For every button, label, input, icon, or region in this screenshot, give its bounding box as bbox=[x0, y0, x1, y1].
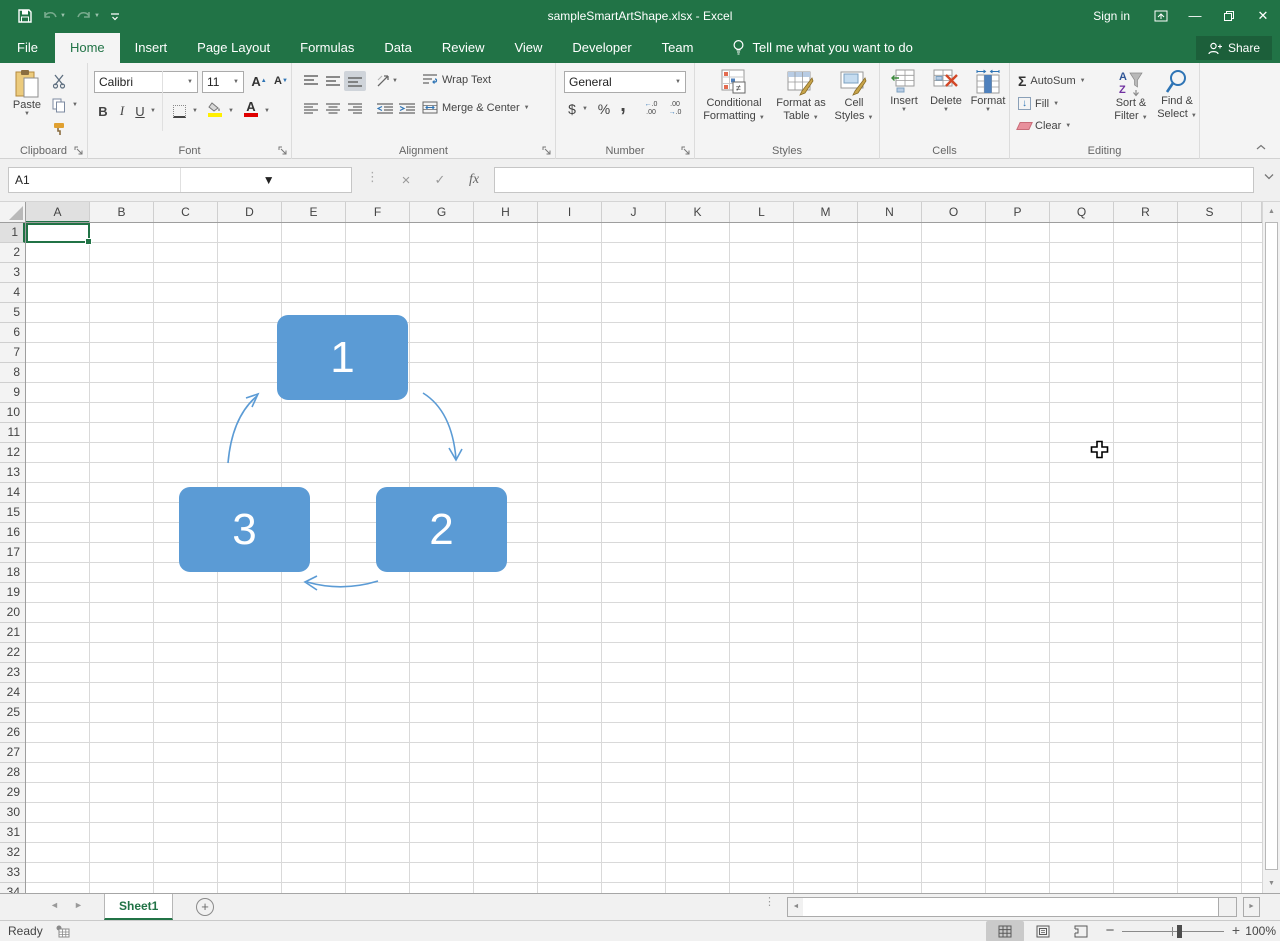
save-icon bbox=[18, 9, 32, 23]
sign-in-link[interactable]: Sign in bbox=[1079, 9, 1144, 23]
sheet-tab-sheet1[interactable]: Sheet1 bbox=[104, 894, 173, 920]
undo-button[interactable]: ▼ bbox=[42, 9, 66, 22]
row-header-29[interactable]: 29 bbox=[0, 783, 25, 803]
smartart-shape-1-label: 1 bbox=[330, 333, 354, 383]
selected-cell-a1[interactable] bbox=[26, 223, 90, 243]
font-color-button[interactable]: A bbox=[240, 99, 262, 119]
row-header-23[interactable]: 23 bbox=[0, 663, 25, 683]
row-header-26[interactable]: 26 bbox=[0, 723, 25, 743]
accounting-format-button[interactable]: $ bbox=[564, 99, 580, 119]
column-header-E[interactable]: E bbox=[282, 202, 346, 223]
ribbon-display-options-button[interactable] bbox=[1144, 0, 1178, 31]
column-header-J[interactable]: J bbox=[602, 202, 666, 223]
top-align-button[interactable] bbox=[300, 71, 322, 91]
fill-icon: ↓ bbox=[1018, 97, 1031, 110]
orientation-icon bbox=[376, 74, 392, 88]
status-bar: Ready − + 100% bbox=[0, 920, 1280, 941]
orientation-button[interactable]: ▼ bbox=[374, 71, 400, 91]
find-select-button[interactable]: Find & Select ▼ bbox=[1156, 69, 1198, 121]
view-shortcuts bbox=[986, 921, 1100, 941]
merge-center-button[interactable]: Merge & Center ▼ bbox=[422, 101, 530, 114]
autosum-icon: Σ bbox=[1018, 73, 1026, 89]
vertical-scrollbar[interactable]: ▲ ▼ bbox=[1262, 202, 1280, 893]
merge-center-label: Merge & Center bbox=[442, 102, 520, 114]
group-number: General▼ $ ▼ % , ←.0.00 .00→.0 Number bbox=[556, 63, 695, 159]
copy-dropdown-icon[interactable]: ▼ bbox=[72, 102, 78, 108]
format-cells-button[interactable]: Format ▼ bbox=[968, 69, 1008, 113]
fill-label: Fill bbox=[1035, 98, 1049, 110]
save-button[interactable] bbox=[18, 9, 32, 23]
wrap-text-icon bbox=[422, 73, 438, 86]
excel-window: ▼ ▼ sampleSmartArtShape.xlsx - Excel Sig… bbox=[0, 0, 1280, 941]
column-header-K[interactable]: K bbox=[666, 202, 730, 223]
row-header-8[interactable]: 8 bbox=[0, 363, 25, 383]
zoom-out-button[interactable]: − bbox=[1102, 922, 1118, 939]
conditional-formatting-label-2: Formatting bbox=[703, 110, 756, 122]
horizontal-scrollbar[interactable]: ◄ bbox=[787, 897, 1237, 917]
cell-styles-button[interactable]: Cell Styles ▼ bbox=[831, 69, 877, 123]
row-header-25[interactable]: 25 bbox=[0, 703, 25, 723]
select-all-corner[interactable] bbox=[0, 202, 26, 223]
svg-text:A: A bbox=[1119, 71, 1127, 83]
find-select-label-2: Select bbox=[1157, 108, 1188, 120]
bottom-align-button[interactable] bbox=[344, 71, 366, 91]
clear-dropdown-icon: ▼ bbox=[1065, 123, 1071, 129]
row-header-20[interactable]: 20 bbox=[0, 603, 25, 623]
row-header-33[interactable]: 33 bbox=[0, 863, 25, 883]
group-styles: ≠ Conditional Formatting ▼ Format as Tab… bbox=[695, 63, 880, 159]
customize-qat-icon bbox=[110, 11, 120, 21]
sheet-tab-bar: ◄ ► Sheet1 + ⋮ ◄ ► bbox=[0, 893, 1280, 920]
column-header-H[interactable]: H bbox=[474, 202, 538, 223]
column-header-N[interactable]: N bbox=[858, 202, 922, 223]
row-headers: 1234567891011121314151617181920212223242… bbox=[0, 223, 26, 893]
page-layout-view-button[interactable] bbox=[1024, 921, 1062, 941]
tab-developer[interactable]: Developer bbox=[557, 33, 646, 63]
cut-button[interactable] bbox=[48, 71, 70, 91]
merge-center-dropdown-icon: ▼ bbox=[524, 105, 530, 111]
row-header-16[interactable]: 16 bbox=[0, 523, 25, 543]
row-header-6[interactable]: 6 bbox=[0, 323, 25, 343]
group-editing: Σ AutoSum ▼ ↓ Fill ▼ Clear ▼ A Z bbox=[1010, 63, 1200, 159]
titlebar-controls: Sign in — ✕ bbox=[1079, 0, 1280, 31]
fill-color-dropdown-icon[interactable]: ▼ bbox=[228, 108, 234, 114]
find-select-icon bbox=[1165, 69, 1189, 95]
undo-dropdown-icon: ▼ bbox=[60, 13, 66, 19]
tab-data[interactable]: Data bbox=[369, 33, 426, 63]
row-header-28[interactable]: 28 bbox=[0, 763, 25, 783]
cell-styles-icon bbox=[840, 69, 868, 97]
number-dialog-launcher[interactable] bbox=[681, 146, 691, 156]
ribbon-display-options-icon bbox=[1154, 10, 1168, 22]
share-button[interactable]: Share bbox=[1196, 36, 1272, 60]
collapse-ribbon-button[interactable] bbox=[1256, 144, 1270, 154]
zoom-level-label[interactable]: 100% bbox=[1240, 924, 1276, 938]
borders-dropdown-icon[interactable]: ▼ bbox=[192, 108, 198, 114]
ribbon: Paste ▼ ▼ Clipboard Calibri▼ bbox=[0, 63, 1280, 159]
borders-icon bbox=[173, 105, 186, 118]
format-dropdown-icon: ▼ bbox=[968, 107, 1008, 113]
redo-button[interactable]: ▼ bbox=[76, 9, 100, 22]
smartart-shape-3-label: 3 bbox=[232, 505, 256, 555]
row-header-15[interactable]: 15 bbox=[0, 503, 25, 523]
row-header-24[interactable]: 24 bbox=[0, 683, 25, 703]
alignment-dialog-launcher[interactable] bbox=[542, 146, 552, 156]
minimize-button[interactable]: — bbox=[1178, 0, 1212, 31]
row-header-32[interactable]: 32 bbox=[0, 843, 25, 863]
clear-eraser-icon bbox=[1016, 122, 1033, 130]
alignment-group-label: Alignment bbox=[292, 145, 555, 157]
row-header-7[interactable]: 7 bbox=[0, 343, 25, 363]
insert-cells-label: Insert bbox=[884, 95, 924, 107]
group-font: Calibri▼ 11▼ A▲ A▼ B I U ▼ ▼ ▼ A ▼ bbox=[88, 63, 292, 159]
scroll-up-button[interactable]: ▲ bbox=[1263, 203, 1280, 220]
row-header-17[interactable]: 17 bbox=[0, 543, 25, 563]
sheet-tab-label: Sheet1 bbox=[119, 899, 158, 913]
cell-styles-label-1: Cell bbox=[845, 97, 864, 109]
formula-input[interactable] bbox=[494, 167, 1254, 193]
font-size-value: 11 bbox=[207, 75, 219, 89]
column-header-L[interactable]: L bbox=[730, 202, 794, 223]
wrap-text-label: Wrap Text bbox=[442, 74, 491, 86]
sheet-nav-next-button[interactable]: ► bbox=[74, 900, 83, 910]
column-header-R[interactable]: R bbox=[1114, 202, 1178, 223]
format-cells-label: Format bbox=[968, 95, 1008, 107]
decrease-decimal-button[interactable]: .00→.0 bbox=[664, 99, 686, 119]
tab-review[interactable]: Review bbox=[427, 33, 500, 63]
copy-icon bbox=[52, 98, 66, 113]
row-header-14[interactable]: 14 bbox=[0, 483, 25, 503]
customize-qat-button[interactable] bbox=[110, 11, 120, 21]
align-center-button[interactable] bbox=[322, 99, 344, 119]
column-header-C[interactable]: C bbox=[154, 202, 218, 223]
zoom-slider-track[interactable] bbox=[1122, 931, 1224, 932]
row-header-11[interactable]: 11 bbox=[0, 423, 25, 443]
column-header-S[interactable]: S bbox=[1178, 202, 1242, 223]
row-header-34[interactable]: 34 bbox=[0, 883, 25, 893]
column-header-D[interactable]: D bbox=[218, 202, 282, 223]
column-header-Q[interactable]: Q bbox=[1050, 202, 1114, 223]
tab-scroll-splitter[interactable]: ⋮ bbox=[764, 898, 775, 907]
formula-bar-splitter[interactable]: ⋮ bbox=[366, 169, 379, 185]
conditional-formatting-icon: ≠ bbox=[720, 69, 748, 97]
tab-file[interactable]: File bbox=[0, 33, 55, 63]
format-cells-icon bbox=[975, 69, 1001, 95]
mouse-cursor-cell-plus bbox=[1090, 440, 1109, 459]
font-color-dropdown-icon[interactable]: ▼ bbox=[264, 108, 270, 114]
row-header-12[interactable]: 12 bbox=[0, 443, 25, 463]
sheet-nav-prev-button[interactable]: ◄ bbox=[50, 900, 59, 910]
column-header-B[interactable]: B bbox=[90, 202, 154, 223]
font-group-label: Font bbox=[88, 145, 291, 157]
row-header-9[interactable]: 9 bbox=[0, 383, 25, 403]
name-box-value: A1 bbox=[9, 173, 180, 187]
name-box-dropdown-icon[interactable]: ▼ bbox=[180, 168, 352, 192]
tab-team[interactable]: Team bbox=[647, 33, 709, 63]
font-color-icon: A bbox=[246, 101, 255, 112]
paste-dropdown-icon: ▼ bbox=[6, 111, 48, 117]
format-as-table-label-1: Format as bbox=[776, 97, 826, 109]
borders-button[interactable] bbox=[168, 101, 190, 121]
column-header-A[interactable]: A bbox=[26, 202, 90, 223]
macro-record-button[interactable] bbox=[56, 925, 70, 938]
find-select-label-1: Find & bbox=[1161, 95, 1193, 107]
normal-view-button[interactable] bbox=[986, 921, 1024, 941]
row-header-31[interactable]: 31 bbox=[0, 823, 25, 843]
svg-text:Z: Z bbox=[1119, 84, 1126, 96]
column-header-P[interactable]: P bbox=[986, 202, 1050, 223]
clear-label: Clear bbox=[1035, 120, 1061, 132]
autosum-button[interactable]: Σ AutoSum ▼ bbox=[1018, 73, 1086, 89]
sort-filter-label-2: Filter bbox=[1114, 110, 1138, 122]
arrow-2-to-3 bbox=[307, 581, 378, 587]
row-header-2[interactable]: 2 bbox=[0, 243, 25, 263]
share-person-icon bbox=[1208, 42, 1222, 55]
tab-formulas[interactable]: Formulas bbox=[285, 33, 369, 63]
decrease-indent-button[interactable] bbox=[374, 99, 396, 119]
confirm-entry-button[interactable]: ✓ bbox=[426, 167, 454, 193]
insert-cells-button[interactable]: Insert ▼ bbox=[884, 69, 924, 113]
group-alignment: ▼ Wrap Text Merge & Center ▼ Alignment bbox=[292, 63, 556, 159]
group-cells: Insert ▼ Delete ▼ bbox=[880, 63, 1010, 159]
underline-button[interactable]: U bbox=[132, 101, 148, 121]
editing-group-label: Editing bbox=[1010, 145, 1199, 157]
zoom-slider-center-tick bbox=[1172, 927, 1173, 936]
font-family-select[interactable]: Calibri▼ bbox=[94, 71, 198, 93]
restore-button[interactable] bbox=[1212, 0, 1246, 31]
fill-color-icon bbox=[208, 102, 222, 112]
smartart-shape-1[interactable]: 1 bbox=[277, 315, 408, 400]
clipboard-dialog-launcher[interactable] bbox=[74, 146, 84, 156]
row-header-5[interactable]: 5 bbox=[0, 303, 25, 323]
format-painter-icon bbox=[52, 122, 67, 137]
align-right-button[interactable] bbox=[344, 99, 366, 119]
share-label: Share bbox=[1228, 41, 1260, 55]
scroll-left-button[interactable]: ◄ bbox=[790, 900, 802, 914]
cells-group-label: Cells bbox=[880, 145, 1009, 157]
column-header-partial[interactable] bbox=[1242, 202, 1262, 223]
increase-decimal-button[interactable]: ←.0.00 bbox=[640, 99, 662, 119]
accounting-dropdown-icon[interactable]: ▼ bbox=[582, 106, 588, 112]
new-sheet-button[interactable]: + bbox=[196, 898, 214, 916]
tell-me-label: Tell me what you want to do bbox=[752, 40, 912, 55]
align-left-button[interactable] bbox=[300, 99, 322, 119]
row-header-3[interactable]: 3 bbox=[0, 263, 25, 283]
row-header-1[interactable]: 1 bbox=[0, 223, 25, 243]
delete-dropdown-icon: ▼ bbox=[926, 107, 966, 113]
middle-align-button[interactable] bbox=[322, 71, 344, 91]
decrease-font-size-button[interactable]: A▼ bbox=[270, 71, 292, 91]
close-button[interactable]: ✕ bbox=[1246, 0, 1280, 31]
format-as-table-label-2: Table bbox=[783, 110, 809, 122]
name-box[interactable]: A1 ▼ bbox=[8, 167, 352, 193]
font-dialog-launcher[interactable] bbox=[278, 146, 288, 156]
lightbulb-icon bbox=[732, 39, 745, 55]
autosum-label: AutoSum bbox=[1030, 75, 1075, 87]
fill-dropdown-icon: ▼ bbox=[1053, 101, 1059, 107]
ribbon-tab-row: FileHomeInsertPage LayoutFormulasDataRev… bbox=[0, 31, 1280, 63]
conditional-formatting-button[interactable]: ≠ Conditional Formatting ▼ bbox=[697, 69, 771, 123]
sort-filter-button[interactable]: A Z Sort & Filter ▼ bbox=[1108, 69, 1154, 123]
sheet-cells[interactable]: 1 2 3 bbox=[26, 223, 1262, 893]
insert-function-button[interactable]: fx bbox=[460, 167, 488, 193]
quick-access-toolbar: ▼ ▼ bbox=[0, 9, 120, 23]
column-header-I[interactable]: I bbox=[538, 202, 602, 223]
delete-cells-label: Delete bbox=[926, 95, 966, 107]
format-painter-button[interactable] bbox=[48, 119, 70, 139]
conditional-formatting-label-1: Conditional bbox=[706, 97, 761, 109]
cell-styles-label-2: Styles bbox=[835, 110, 865, 122]
row-header-18[interactable]: 18 bbox=[0, 563, 25, 583]
styles-group-label: Styles bbox=[695, 145, 879, 157]
redo-dropdown-icon: ▼ bbox=[94, 13, 100, 19]
scroll-down-button[interactable]: ▼ bbox=[1263, 875, 1280, 892]
insert-cells-icon bbox=[891, 69, 917, 95]
row-header-4[interactable]: 4 bbox=[0, 283, 25, 303]
horizontal-scrollbar-thumb[interactable] bbox=[803, 898, 1219, 916]
zoom-slider-thumb[interactable] bbox=[1177, 925, 1182, 938]
tab-view[interactable]: View bbox=[499, 33, 557, 63]
format-as-table-icon bbox=[787, 69, 815, 97]
row-header-19[interactable]: 19 bbox=[0, 583, 25, 603]
font-family-value: Calibri bbox=[99, 75, 133, 89]
undo-icon bbox=[42, 9, 58, 22]
underline-dropdown-icon[interactable]: ▼ bbox=[150, 108, 156, 114]
insert-dropdown-icon: ▼ bbox=[884, 107, 924, 113]
font-size-select[interactable]: 11▼ bbox=[202, 71, 244, 93]
column-header-O[interactable]: O bbox=[922, 202, 986, 223]
italic-button[interactable]: I bbox=[114, 101, 130, 121]
wrap-text-button[interactable]: Wrap Text bbox=[422, 73, 491, 86]
number-group-label: Number bbox=[556, 145, 694, 157]
status-mode-label: Ready bbox=[8, 924, 43, 938]
format-as-table-button[interactable]: Format as Table ▼ bbox=[773, 69, 829, 123]
row-header-22[interactable]: 22 bbox=[0, 643, 25, 663]
paste-icon bbox=[14, 69, 40, 99]
tab-insert[interactable]: Insert bbox=[120, 33, 183, 63]
column-header-G[interactable]: G bbox=[410, 202, 474, 223]
paste-label: Paste bbox=[6, 99, 48, 111]
titlebar: ▼ ▼ sampleSmartArtShape.xlsx - Excel Sig… bbox=[0, 0, 1280, 31]
sort-filter-label-1: Sort & bbox=[1116, 97, 1147, 109]
redo-icon bbox=[76, 9, 92, 22]
restore-icon bbox=[1224, 11, 1234, 21]
group-clipboard: Paste ▼ ▼ Clipboard bbox=[0, 63, 88, 159]
fill-button[interactable]: ↓ Fill ▼ bbox=[1018, 97, 1059, 110]
fill-color-button[interactable] bbox=[204, 99, 226, 119]
column-headers: ABCDEFGHIJKLMNOPQRS bbox=[26, 202, 1262, 223]
page-break-preview-button[interactable] bbox=[1062, 921, 1100, 941]
tell-me-box[interactable]: Tell me what you want to do bbox=[720, 32, 924, 63]
arrow-3-to-1 bbox=[228, 396, 257, 463]
delete-cells-icon bbox=[933, 69, 959, 95]
smartart-shape-2-label: 2 bbox=[429, 505, 453, 555]
scroll-right-button[interactable]: ► bbox=[1243, 897, 1260, 917]
svg-text:≠: ≠ bbox=[736, 83, 741, 93]
merge-center-icon bbox=[422, 101, 438, 114]
number-format-select[interactable]: General▼ bbox=[564, 71, 686, 93]
column-header-F[interactable]: F bbox=[346, 202, 410, 223]
cancel-entry-button[interactable]: × bbox=[392, 167, 420, 193]
tab-page-layout[interactable]: Page Layout bbox=[182, 33, 285, 63]
row-header-27[interactable]: 27 bbox=[0, 743, 25, 763]
arrow-1-to-2 bbox=[423, 393, 456, 459]
row-header-10[interactable]: 10 bbox=[0, 403, 25, 423]
tab-home[interactable]: Home bbox=[55, 33, 120, 63]
row-header-21[interactable]: 21 bbox=[0, 623, 25, 643]
row-header-13[interactable]: 13 bbox=[0, 463, 25, 483]
formula-bar-row: A1 ▼ ⋮ × ✓ fx bbox=[0, 159, 1280, 202]
copy-button[interactable] bbox=[48, 95, 70, 115]
number-format-value: General bbox=[569, 75, 612, 89]
paste-button[interactable]: Paste ▼ bbox=[6, 69, 48, 117]
vertical-scrollbar-thumb[interactable] bbox=[1265, 222, 1278, 870]
smartart-shape-2[interactable]: 2 bbox=[376, 487, 507, 572]
column-header-M[interactable]: M bbox=[794, 202, 858, 223]
smartart-shape-3[interactable]: 3 bbox=[179, 487, 310, 572]
increase-indent-button[interactable] bbox=[396, 99, 418, 119]
comma-style-button[interactable]: , bbox=[616, 95, 630, 115]
cut-icon bbox=[52, 74, 67, 89]
sort-filter-icon: A Z bbox=[1118, 69, 1144, 97]
increase-font-size-button[interactable]: A▲ bbox=[248, 71, 270, 91]
clear-button[interactable]: Clear ▼ bbox=[1018, 120, 1071, 132]
autosum-dropdown-icon: ▼ bbox=[1080, 78, 1086, 84]
delete-cells-button[interactable]: Delete ▼ bbox=[926, 69, 966, 113]
row-header-30[interactable]: 30 bbox=[0, 803, 25, 823]
bold-button[interactable]: B bbox=[94, 101, 112, 121]
percent-style-button[interactable]: % bbox=[594, 99, 614, 119]
expand-formula-bar-button[interactable] bbox=[1264, 173, 1274, 180]
ribbon-tabs: FileHomeInsertPage LayoutFormulasDataRev… bbox=[0, 33, 708, 63]
